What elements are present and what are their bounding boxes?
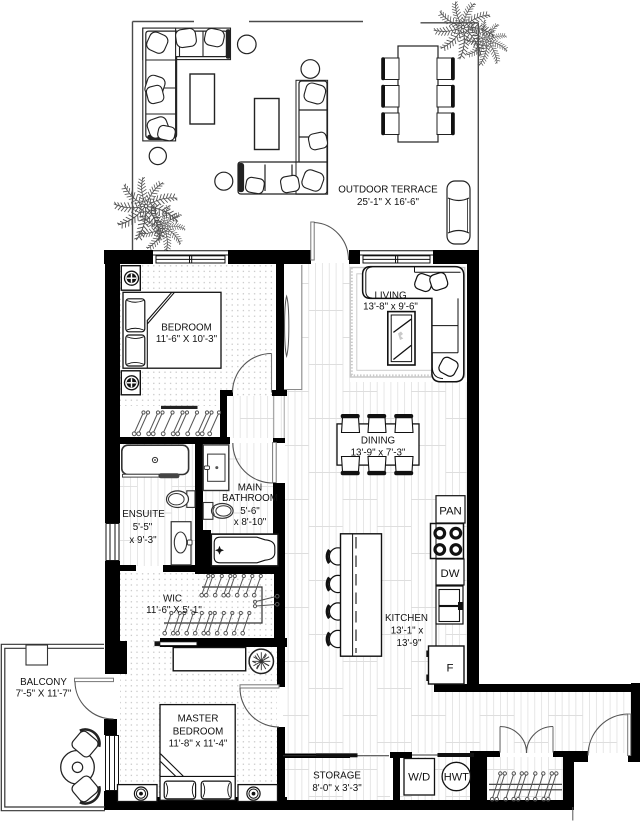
svg-text:7'-5" X 11'-7": 7'-5" X 11'-7" [16,689,72,700]
svg-text:13'-1" x: 13'-1" x [391,626,424,637]
svg-text:ENSUITE: ENSUITE [122,509,165,520]
svg-text:MAIN: MAIN [238,482,263,493]
svg-text:OUTDOOR TERRACE: OUTDOOR TERRACE [338,185,438,196]
svg-text:WIC: WIC [163,594,182,605]
svg-text:PAN: PAN [439,506,462,518]
svg-text:x 9'-3": x 9'-3" [129,535,157,546]
svg-text:5'-5": 5'-5" [133,522,153,533]
svg-text:BEDROOM: BEDROOM [161,323,212,334]
svg-text:x 8'-10": x 8'-10" [234,517,267,528]
svg-text:F: F [447,663,454,675]
svg-text:25'-1" X 16'-6": 25'-1" X 16'-6" [357,197,419,208]
svg-text:5'-6": 5'-6" [240,506,260,517]
svg-text:W/D: W/D [408,772,430,784]
svg-text:HWT: HWT [444,771,469,783]
svg-text:DW: DW [441,568,460,580]
svg-text:KITCHEN: KITCHEN [385,613,428,624]
svg-text:11'-6" X 5'-1": 11'-6" X 5'-1" [146,605,202,616]
svg-text:13'-9" x 7'-3": 13'-9" x 7'-3" [351,448,406,459]
svg-text:13'-8" x 9'-6": 13'-8" x 9'-6" [363,302,418,313]
svg-text:11'-8" x 11'-4": 11'-8" x 11'-4" [169,739,228,750]
svg-text:MASTER: MASTER [178,714,219,725]
svg-text:BATHROOM: BATHROOM [222,493,278,504]
svg-text:DINING: DINING [361,435,395,446]
svg-text:BEDROOM: BEDROOM [173,727,224,738]
svg-text:BALCONY: BALCONY [20,677,67,688]
svg-text:STORAGE: STORAGE [313,771,361,782]
svg-text:8'-0" x 3'-3": 8'-0" x 3'-3" [312,783,362,794]
svg-text:13'-9": 13'-9" [397,638,422,649]
svg-text:11'-6" X 10'-3": 11'-6" X 10'-3" [156,334,218,345]
svg-text:LIVING: LIVING [374,291,406,302]
